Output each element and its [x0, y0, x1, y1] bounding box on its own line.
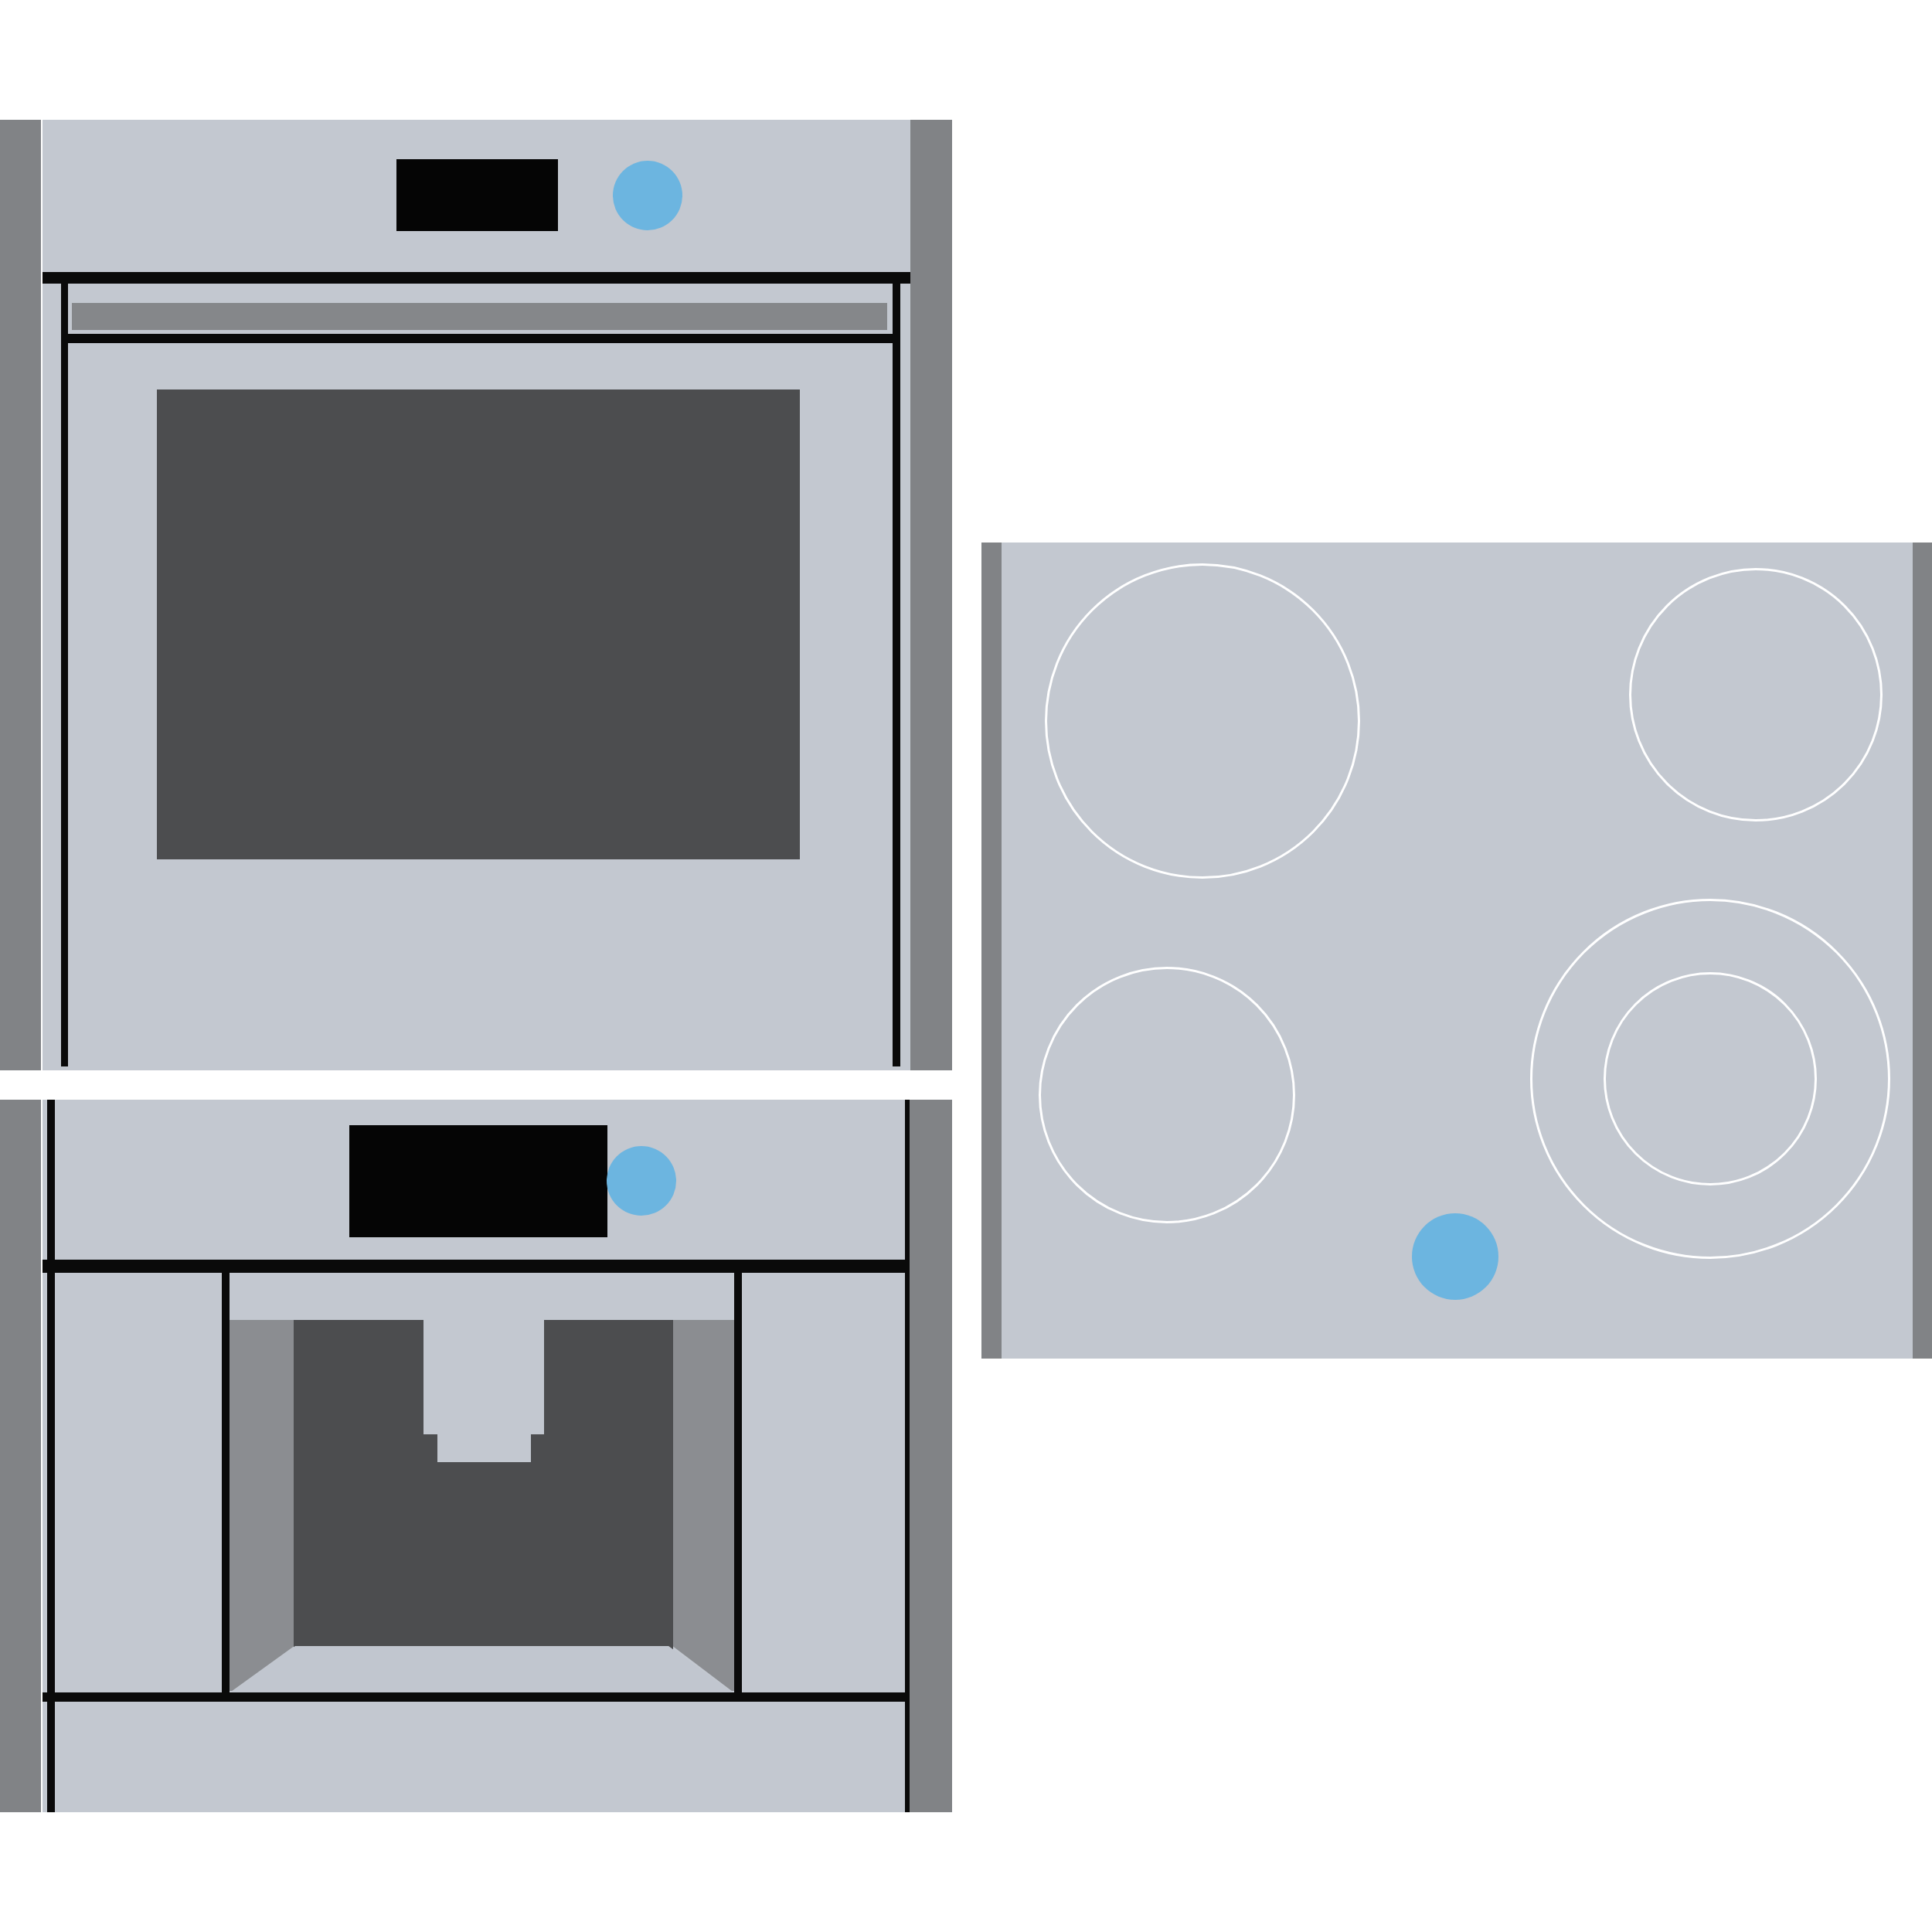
oven-door-right-edge	[893, 284, 900, 1066]
cooktop-frame-left	[981, 543, 1002, 1359]
burner-top-left	[1045, 563, 1360, 879]
oven-power-knob[interactable]	[613, 161, 682, 230]
oven-door-window	[157, 389, 800, 859]
oven-handle-divider	[68, 334, 893, 343]
coffee-recess-line-left	[222, 1273, 230, 1692]
coffee-display[interactable]	[349, 1125, 607, 1237]
oven-door-handle[interactable]	[72, 303, 887, 330]
coffee-bottom-divider	[43, 1692, 905, 1702]
oven-cabinet-right-panel	[910, 120, 952, 1070]
coffee-dispenser-spout	[423, 1320, 544, 1434]
illustration-canvas	[0, 0, 1932, 1932]
coffee-recess-wall-left	[230, 1320, 294, 1691]
oven-panel-divider	[43, 272, 910, 284]
oven-door-left-edge	[61, 284, 68, 1066]
cooktop-frame-right	[1913, 543, 1932, 1359]
oven-display[interactable]	[396, 159, 558, 231]
coffee-left-edge-line	[47, 1100, 55, 1812]
burner-bottom-left	[1039, 967, 1295, 1223]
coffee-recess-line-right	[734, 1273, 742, 1692]
cooktop-power-button[interactable]	[1412, 1213, 1498, 1300]
coffee-cabinet-left-panel	[0, 1100, 41, 1812]
oven-cabinet-left-panel	[0, 120, 41, 1070]
coffee-right-edge-line	[905, 1100, 910, 1812]
coffee-panel-divider	[43, 1260, 905, 1273]
burner-dual-inner-ring	[1604, 972, 1817, 1185]
coffee-dispenser-spout-tip	[437, 1434, 531, 1462]
coffee-cabinet-right-panel	[910, 1100, 952, 1812]
coffee-recess-wall-right	[673, 1320, 734, 1691]
burner-top-right	[1629, 568, 1883, 821]
coffee-power-knob[interactable]	[607, 1146, 676, 1216]
coffee-drawer-front	[55, 1702, 905, 1812]
coffee-recess-floor	[230, 1646, 734, 1692]
